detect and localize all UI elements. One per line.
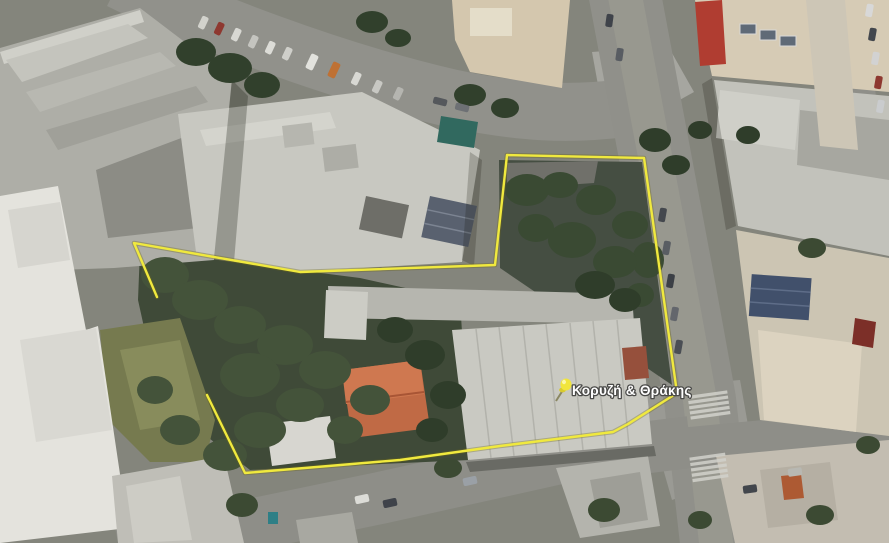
dumpster (268, 512, 278, 524)
satellite-map[interactable]: Κορυζή & Θράκης (0, 0, 889, 543)
building-right-lower-block (736, 230, 889, 436)
building-red-shed (622, 346, 649, 380)
satellite-scene: Κορυζή & Θράκης (0, 0, 889, 543)
building-bottomright-block (716, 440, 889, 543)
placemark-label[interactable]: Κορυζή & Θράκης (572, 383, 692, 398)
